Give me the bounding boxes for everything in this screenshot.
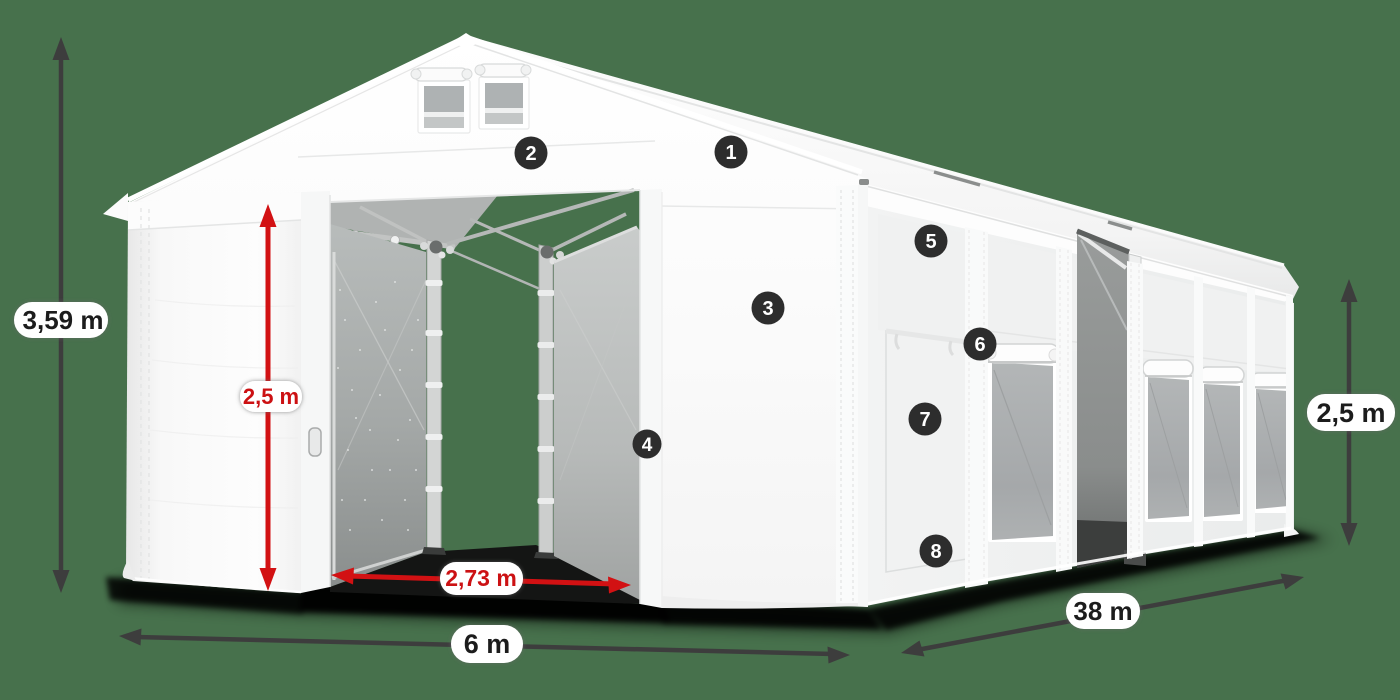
svg-text:2,5 m: 2,5 m: [1316, 398, 1385, 428]
svg-text:38 m: 38 m: [1073, 596, 1132, 626]
svg-text:7: 7: [919, 409, 930, 431]
svg-text:5: 5: [925, 231, 936, 253]
svg-text:1: 1: [725, 142, 736, 164]
svg-text:6: 6: [974, 334, 985, 356]
svg-text:2: 2: [525, 143, 536, 165]
svg-text:2,73 m: 2,73 m: [445, 565, 517, 591]
svg-text:3: 3: [762, 298, 773, 320]
svg-text:4: 4: [642, 435, 653, 456]
svg-text:8: 8: [930, 541, 941, 563]
svg-text:3,59 m: 3,59 m: [23, 305, 104, 335]
svg-text:6 m: 6 m: [464, 629, 511, 659]
svg-text:2,5 m: 2,5 m: [243, 384, 299, 409]
